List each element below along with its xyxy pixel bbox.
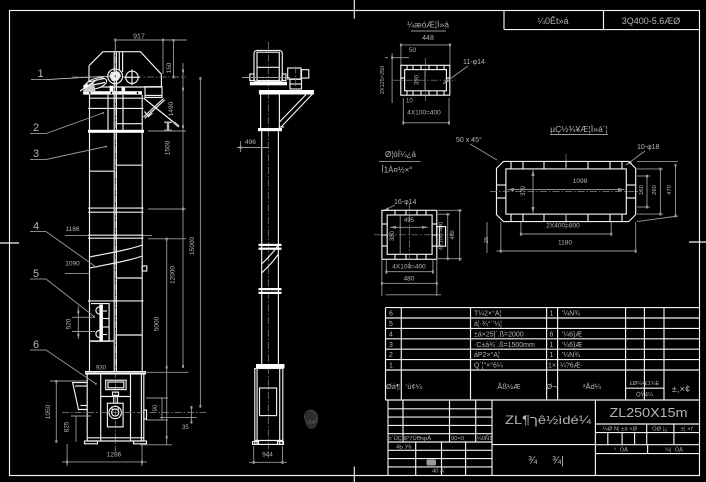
svg-text:1: 1 [389,363,393,370]
svg-text:'ú¢¼: 'ú¢¼ [406,382,423,391]
svg-text:±¦ ×ґ: ±¦ ×ґ [681,426,694,433]
svg-text:'¼N¾: '¼N¾ [562,311,580,318]
svg-text:¼?6Æ·: ¼?6Æ· [560,363,583,370]
svg-text:4X100=400: 4X100=400 [407,110,441,117]
svg-text:° ÖÄ: ° ÖÄ [614,447,628,454]
svg-text:917: 917 [133,34,145,41]
svg-text:1286: 1286 [107,452,122,459]
svg-text:2: 2 [389,352,393,359]
svg-text:4X100=400: 4X100=400 [392,264,426,271]
svg-text:2X125=250: 2X125=250 [380,66,386,94]
svg-text:825: 825 [64,421,71,432]
svg-text:1098: 1098 [573,178,588,185]
svg-text:Î1À¤½×°: Î1À¤½×° [381,166,413,175]
svg-text:1180: 1180 [558,240,572,247]
svg-text:3: 3 [33,148,39,160]
svg-text:Ø¦óÍ¼¿á: Ø¦óÍ¼¿á [385,150,417,159]
svg-text:1186: 1186 [66,226,80,233]
svg-text:¾: ¾ [528,455,538,467]
svg-text:10-φ18: 10-φ18 [637,144,660,151]
svg-text:ZL250X15m: ZL250X15m [610,405,688,420]
svg-text:390: 390 [415,74,421,85]
svg-text:µÇ½¾¥Æ¦Ì»á´¦: µÇ½¾¥Æ¦Ì»á´¦ [550,124,608,134]
svg-text:Ãß½Æ: Ãß½Æ [497,382,521,391]
svg-text:480: 480 [404,276,415,283]
svg-text:5: 5 [389,321,393,328]
svg-text:1: 1 [550,352,554,359]
svg-text:6: 6 [550,331,554,338]
svg-text:370: 370 [521,185,527,196]
svg-text:¼¦ ÖÄ: ¼¦ ÖÄ [665,447,683,454]
svg-text:Q´¦"×°6¼: Q´¦"×°6¼ [474,362,503,370]
svg-text:260: 260 [652,185,658,195]
svg-text:, 7ÙӨxpÅ: , 7ÙӨxpÅ [406,435,431,442]
svg-text:90×0: 90×0 [451,436,464,442]
svg-text:50: 50 [409,47,417,54]
svg-text:944: 944 [262,452,273,459]
svg-text:1050: 1050 [45,404,52,419]
svg-text:2X400=800: 2X400=800 [546,223,580,230]
svg-text:470: 470 [667,185,673,195]
svg-text:380: 380 [390,230,396,241]
svg-text:4: 4 [33,221,39,233]
svg-text:Ø¬: Ø¬ [546,382,557,391]
svg-text:50 x 45°: 50 x 45° [456,136,482,144]
svg-text:35: 35 [182,425,189,431]
svg-text:10: 10 [406,99,413,105]
svg-text:4Ь У6: 4Ь У6 [396,445,412,451]
svg-text:495: 495 [404,218,415,224]
svg-text:£Ø¼×£1¾E: £Ø¼×£1¾E [630,381,660,387]
svg-text:ZL¶ךê½ìdé¼: ZL¶ךê½ìdé¼ [505,413,592,427]
svg-text:'¼6)Æ: '¼6)Æ [562,331,582,338]
svg-text:25: 25 [484,237,490,243]
svg-text:6: 6 [33,339,39,351]
svg-text:1500: 1500 [165,140,172,155]
svg-text:á¦·¾°´'¼¦: á¦·¾°´'¼¦ [474,320,502,328]
svg-text:¼Ø N¦ ±á ×Ø: ¼Ø N¦ ±á ×Ø [603,427,638,433]
svg-text:4X100=400: 4X100=400 [439,222,445,250]
svg-text:¼æóÆ¦Ì»á: ¼æóÆ¦Ì»á [407,20,449,30]
svg-text:12000: 12000 [170,266,177,284]
svg-text:448: 448 [422,35,434,42]
svg-text:2: 2 [33,122,39,134]
svg-text:11-φ14: 11-φ14 [463,59,485,66]
svg-text:6: 6 [389,311,393,318]
svg-text:150: 150 [166,62,173,73]
svg-text:Øá¶: Øá¶ [386,382,400,391]
svg-text:±á×25|´.ß=2000: ±á×25|´.ß=2000 [474,331,524,338]
svg-text:520: 520 [66,318,73,329]
svg-text:¼0Êt»á: ¼0Êt»á [537,16,568,26]
svg-text:90: 90 [153,404,159,411]
svg-text:1: 1 [38,68,44,80]
svg-text:ÒÝ4¼: ÒÝ4¼ [636,392,654,399]
svg-text:1×: 1× [548,363,556,370]
svg-text:±,×¢: ±,×¢ [672,384,691,395]
svg-text:3Q400-5.6ÆØ: 3Q400-5.6ÆØ [622,16,681,26]
svg-text:40 А´: 40 А´ [432,469,446,475]
svg-text:'¼6)Æ: '¼6)Æ [562,342,582,349]
svg-text:1: 1 [550,311,554,318]
svg-text:²Åd¼: ²Åd¼ [583,382,602,391]
svg-text:3: 3 [389,342,393,349]
svg-text:150: 150 [639,185,645,195]
svg-text:¾|: ¾| [552,455,564,467]
svg-text:áP2×°A¦: áP2×°A¦ [474,351,500,359]
svg-text:ÖØ ¦¿: ÖØ ¦¿ [652,426,668,433]
svg-text:1090: 1090 [65,261,80,268]
svg-text:5000: 5000 [154,316,161,331]
svg-text:'¼N¾: '¼N¾ [562,352,580,359]
svg-text:930: 930 [96,366,107,372]
svg-text:T¼2×°A¦: T¼2×°A¦ [474,310,502,318]
svg-text:1: 1 [550,342,554,349]
svg-text:·C±á¾´.ß=1500mm: ·C±á¾´.ß=1500mm [474,342,535,349]
svg-text:¼0Ñ1: ¼0Ñ1 [477,435,492,442]
svg-text:5: 5 [33,268,39,280]
svg-text:496: 496 [245,139,256,146]
svg-text:16-φ14: 16-φ14 [394,199,417,206]
svg-text:1490: 1490 [168,101,175,116]
svg-text:15000: 15000 [189,237,196,255]
svg-text:4: 4 [389,331,393,338]
svg-text:480: 480 [450,230,456,239]
